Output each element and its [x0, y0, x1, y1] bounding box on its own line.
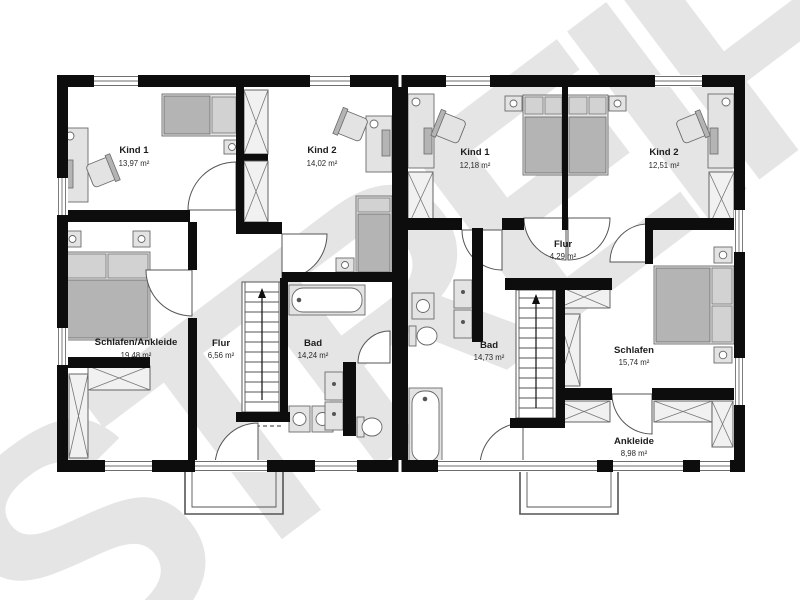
room-label-left-kind2: Kind 2 [307, 145, 336, 156]
bathtub-basin [292, 288, 362, 312]
lamp-icon [719, 351, 727, 359]
staircase-right [516, 290, 556, 422]
room-label-right-kind2: Kind 2 [649, 147, 678, 158]
room-area-right-bad: 14,73 m² [474, 353, 505, 362]
sink-faucet-icon [332, 412, 336, 416]
room-area-left-schlafen: 19,48 m² [121, 351, 152, 360]
desk-lamp-icon [412, 98, 420, 106]
room-area-left-kind2: 14,02 m² [307, 159, 338, 168]
sink-faucet-icon [461, 320, 465, 324]
room-area-right-schlafen: 15,74 m² [619, 358, 650, 367]
washer-door-icon [417, 300, 430, 313]
sink-faucet-icon [461, 290, 465, 294]
wall [236, 222, 282, 234]
wall [556, 290, 565, 420]
balcony-right [520, 472, 618, 514]
bed-mattress [656, 268, 710, 342]
window [446, 75, 490, 87]
wardrobe [654, 401, 712, 422]
washer-door-icon [293, 413, 306, 426]
wall [562, 87, 568, 230]
room-label-right-schlafen: Schlafen [614, 345, 654, 356]
wall-exterior-left [57, 75, 68, 472]
wall-exterior-right [734, 75, 745, 472]
window [195, 460, 267, 472]
wardrobe [88, 366, 150, 390]
wall [652, 388, 734, 400]
lamp-icon [229, 144, 236, 151]
window [613, 460, 683, 472]
room-label-right-ankleide: Ankleide [614, 436, 654, 447]
floor-plan: STREIF [0, 0, 800, 600]
bed-pillow [525, 97, 543, 114]
wardrobe [709, 172, 734, 226]
wall [282, 272, 392, 282]
wall [236, 412, 290, 422]
bed-mattress [525, 117, 562, 173]
room-area-left-flur: 6,56 m² [208, 351, 235, 360]
bed-pillow [108, 254, 148, 278]
wall [556, 388, 612, 400]
window [700, 460, 730, 472]
bathtub-basin [412, 391, 439, 462]
wardrobe [244, 161, 268, 222]
lamp-icon [719, 251, 727, 259]
room-label-left-bad: Bad [304, 338, 322, 349]
door-left-kind1 [188, 162, 236, 210]
toilet [362, 418, 382, 436]
room-area-left-bad: 14,24 m² [298, 351, 329, 360]
window [57, 328, 68, 365]
sink-faucet-icon [332, 382, 336, 386]
bed-mattress [164, 96, 210, 134]
wardrobe [69, 374, 88, 458]
wall [280, 278, 288, 413]
bed-pillow [358, 198, 390, 212]
lamp-icon [342, 262, 349, 269]
window [105, 460, 152, 472]
wall [502, 218, 524, 230]
party-wall-joint [399, 460, 402, 472]
room-area-right-kind1: 12,18 m² [460, 161, 491, 170]
window [734, 358, 745, 405]
wall [236, 87, 244, 234]
room-area-right-kind2: 12,51 m² [649, 161, 680, 170]
room-label-left-kind1: Kind 1 [119, 145, 149, 156]
desk-monitor [382, 130, 390, 156]
room-label-right-flur: Flur [554, 239, 572, 250]
wall [343, 362, 356, 436]
bed-pillow [545, 97, 562, 114]
toilet-tank [409, 326, 416, 346]
faucet-icon [423, 397, 428, 402]
faucet-icon [297, 298, 302, 303]
wall [188, 318, 197, 460]
party-wall-joint [399, 75, 402, 87]
bed-mattress [569, 117, 606, 173]
wardrobe [408, 172, 433, 226]
room-area-right-flur: 4,29 m² [550, 252, 577, 261]
lamp-icon [614, 100, 621, 107]
bed-pillow [712, 306, 732, 342]
wardrobe-column-left [244, 90, 268, 222]
wardrobe [558, 401, 610, 422]
desk-monitor [424, 128, 432, 154]
lamp-icon [69, 236, 76, 243]
desk-monitor [710, 128, 718, 154]
bed-pillow [66, 254, 106, 278]
bed-pillow [712, 268, 732, 304]
window [655, 75, 702, 87]
wall [408, 218, 462, 230]
bed-pillow [589, 97, 606, 114]
window [315, 460, 357, 472]
desk-lamp-icon [370, 120, 378, 128]
wall [505, 278, 612, 290]
wall [472, 228, 483, 342]
toilet [417, 327, 437, 345]
desk-lamp-icon [722, 98, 730, 106]
lamp-icon [510, 100, 517, 107]
wardrobe [712, 401, 733, 447]
wall [188, 222, 197, 270]
room-area-right-ankleide: 8,98 m² [621, 449, 648, 458]
window [734, 210, 745, 252]
bed-pillow [569, 97, 587, 114]
wall [650, 218, 734, 230]
room-label-left-schlafen: Schlafen/Ankleide [95, 337, 178, 348]
wall [57, 210, 190, 222]
staircase-left [242, 282, 282, 426]
chair [85, 154, 121, 190]
bed-mattress [66, 280, 148, 338]
wall [510, 418, 565, 428]
bed-pillow [212, 97, 236, 133]
wardrobe [244, 90, 268, 154]
door-right-ankleide [612, 394, 652, 434]
window [438, 460, 597, 472]
wall [645, 218, 653, 264]
room-label-left-flur: Flur [212, 338, 230, 349]
wall-stub [244, 154, 268, 161]
room-label-right-bad: Bad [480, 340, 498, 351]
window [310, 75, 350, 87]
window [57, 178, 68, 215]
room-area-left-kind1: 13,97 m² [119, 159, 150, 168]
wall-party [392, 75, 408, 472]
lamp-icon [138, 236, 145, 243]
bed-mattress [358, 214, 390, 272]
window [94, 75, 138, 87]
room-label-right-kind1: Kind 1 [460, 147, 490, 158]
